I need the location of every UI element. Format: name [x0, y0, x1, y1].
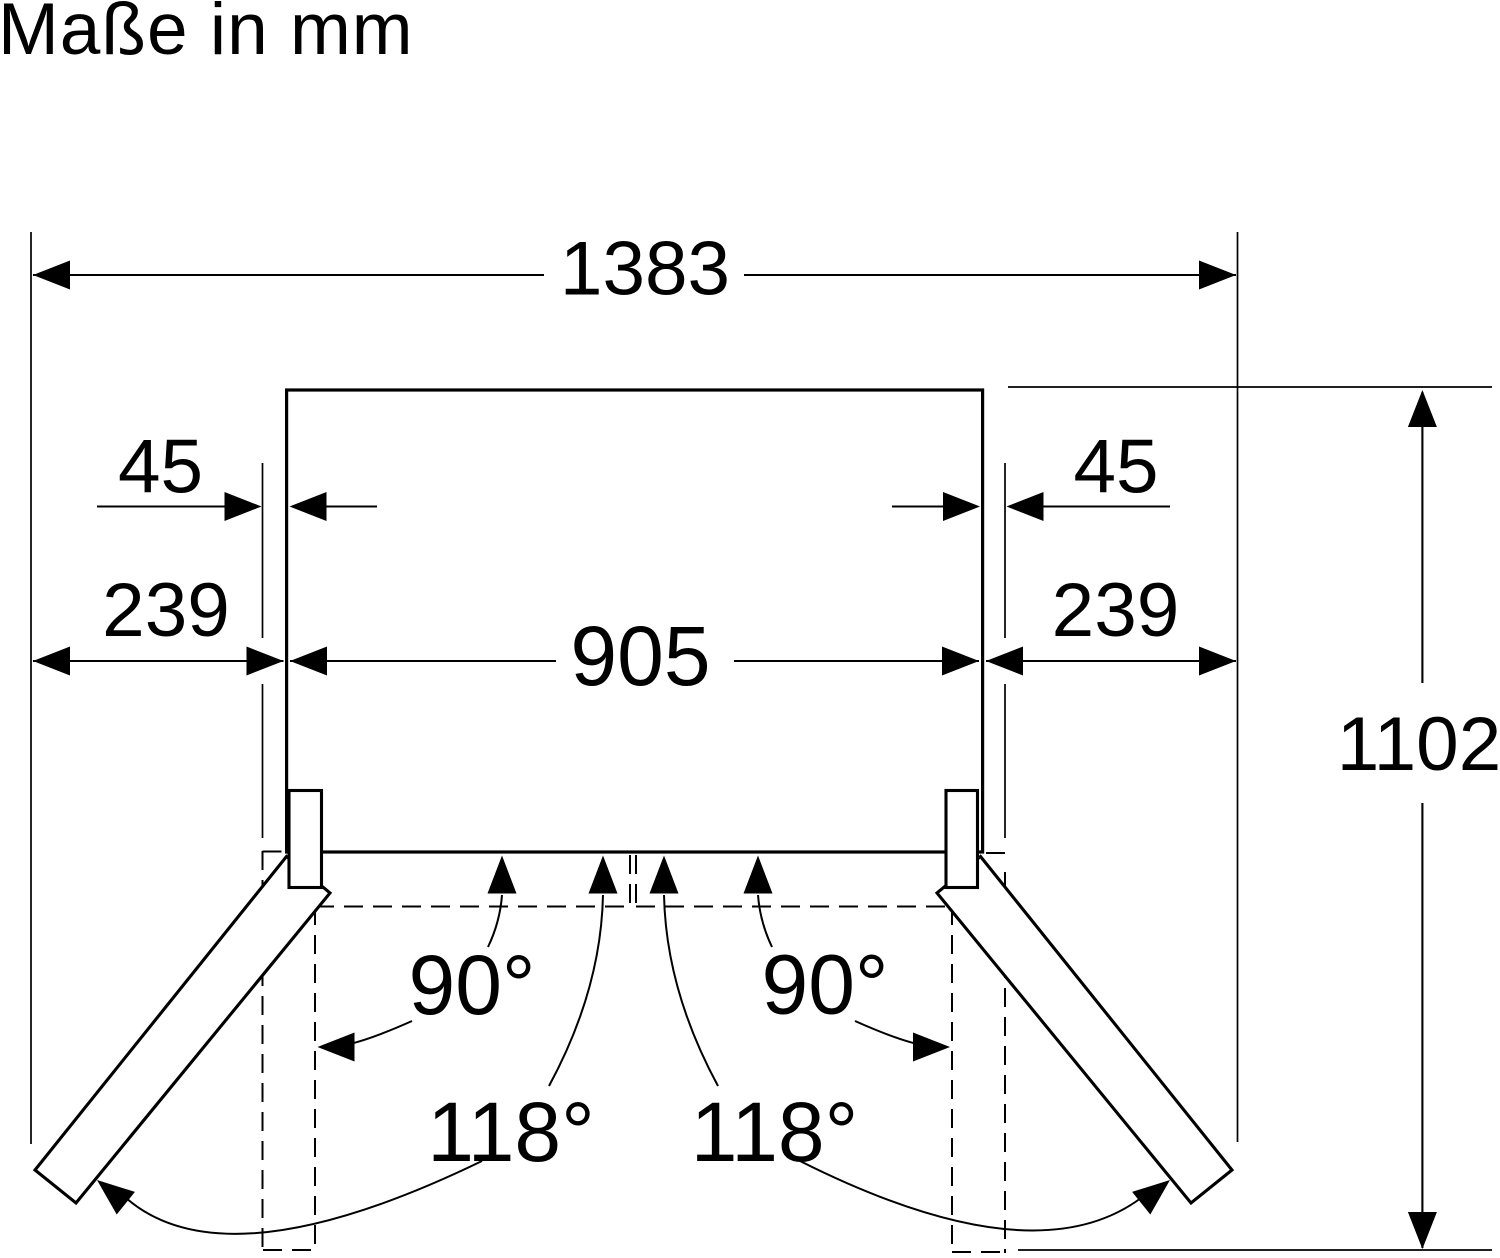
- svg-text:118°: 118°: [691, 1085, 859, 1179]
- svg-text:45: 45: [118, 425, 203, 510]
- svg-text:118°: 118°: [427, 1085, 595, 1179]
- svg-text:239: 239: [102, 568, 230, 653]
- svg-text:1383: 1383: [560, 227, 730, 312]
- svg-text:Maße in mm: Maße in mm: [0, 0, 414, 70]
- svg-text:905: 905: [570, 609, 710, 703]
- svg-text:45: 45: [1073, 425, 1158, 510]
- svg-text:1102: 1102: [1337, 702, 1500, 787]
- svg-text:90°: 90°: [761, 938, 888, 1032]
- svg-text:239: 239: [1052, 568, 1180, 653]
- svg-text:90°: 90°: [408, 938, 535, 1032]
